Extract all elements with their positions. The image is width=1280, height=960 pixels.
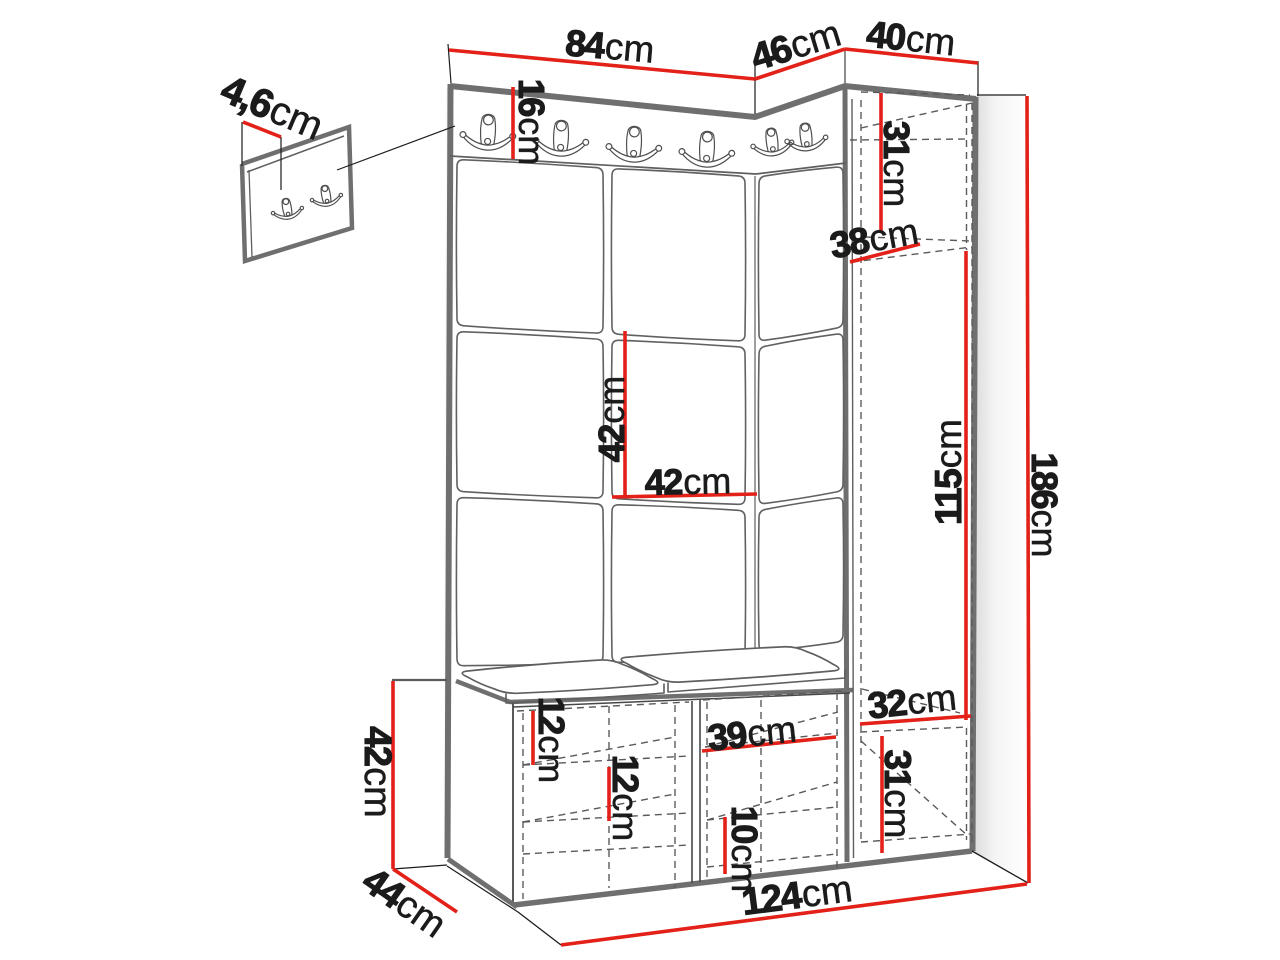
svg-text:186cm: 186cm bbox=[1025, 452, 1066, 557]
svg-text:84cm: 84cm bbox=[564, 22, 656, 71]
svg-text:44cm: 44cm bbox=[355, 860, 454, 947]
svg-text:42cm: 42cm bbox=[644, 460, 731, 503]
svg-text:31cm: 31cm bbox=[878, 750, 919, 839]
svg-text:4,6cm: 4,6cm bbox=[215, 67, 330, 149]
svg-text:31cm: 31cm bbox=[877, 121, 918, 208]
svg-text:12cm: 12cm bbox=[532, 697, 573, 784]
svg-text:16cm: 16cm bbox=[512, 79, 553, 166]
svg-text:42cm: 42cm bbox=[591, 376, 632, 463]
svg-text:46cm: 46cm bbox=[746, 13, 846, 80]
svg-text:39cm: 39cm bbox=[706, 708, 799, 758]
svg-text:40cm: 40cm bbox=[865, 13, 958, 63]
svg-text:42cm: 42cm bbox=[356, 726, 398, 817]
svg-text:115cm: 115cm bbox=[928, 419, 969, 525]
svg-text:12cm: 12cm bbox=[606, 755, 647, 842]
